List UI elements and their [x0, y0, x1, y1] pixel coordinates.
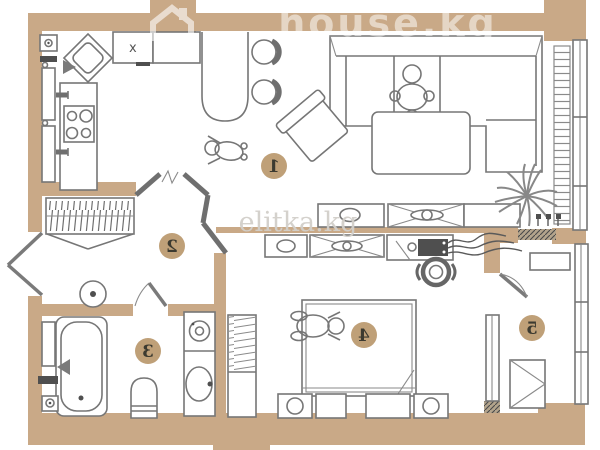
balcony-door-icon: [500, 274, 527, 297]
media-device-icon: [387, 235, 453, 260]
balcony-window-icon: [575, 244, 588, 404]
ottoman-icon: [278, 394, 312, 418]
living-room-fixtures: [205, 36, 561, 227]
wall-hatched-band: [518, 229, 556, 240]
room-label-4: 4: [351, 322, 377, 348]
bar-counter-icon: [202, 32, 248, 121]
room-label-3: 3: [135, 338, 161, 364]
sideboard-icon: [265, 235, 307, 257]
stool-icon: [80, 281, 106, 307]
sideboard-icon: [464, 204, 520, 227]
tv-console-icon: [310, 235, 384, 257]
room-label-5: 5: [519, 315, 545, 341]
wardrobe-hangers-icon: [46, 198, 134, 249]
floor-plan-image: x: [0, 0, 600, 450]
bathroom-door-icon: [135, 283, 166, 306]
corner-sink-icon: [64, 34, 112, 82]
hallway-fixtures: [46, 198, 134, 307]
kitchen-fixtures: x: [40, 32, 279, 190]
room-number: 5: [526, 319, 538, 339]
nightstand-icon: [414, 394, 448, 418]
wall-break-symbol: [162, 171, 178, 183]
bathroom-fixtures: [38, 312, 215, 418]
room-number: 2: [166, 237, 178, 257]
radiator-icon: [554, 46, 570, 224]
watermark-house-kg: house.kg: [278, 1, 498, 45]
nightstand-icon: [316, 394, 346, 418]
bar-stool-icon: [252, 40, 279, 64]
floor-plan: x: [0, 0, 600, 450]
room-label-2: 2: [159, 233, 185, 259]
wall-porch-block: [213, 418, 270, 450]
fan-icon: [417, 259, 455, 285]
entrance-double-door-icon: [8, 233, 42, 295]
double-bed-icon: [302, 300, 416, 396]
person-standing-icon: [205, 136, 247, 164]
wardrobe-icon: [510, 360, 545, 408]
shelving-unit-icon: [228, 315, 256, 417]
toilet-icon: [131, 378, 157, 418]
shelf-icon: [530, 253, 570, 270]
bench-icon: [366, 394, 410, 418]
riser-radiator-icon: [42, 68, 55, 120]
bedroom-fixtures: [228, 233, 522, 418]
wall-balcony-partition: [484, 243, 500, 273]
bathtub-icon: [56, 317, 107, 416]
room-number: 3: [142, 342, 154, 362]
hob-4-burner-icon: [64, 106, 94, 142]
bar-stool-icon: [252, 80, 279, 104]
room-number: 4: [358, 326, 370, 346]
cabinet-mark: x: [129, 41, 137, 56]
glazed-partition-icon: [486, 315, 499, 401]
coffee-table-icon: [372, 112, 470, 174]
riser-radiator-icon: [42, 126, 55, 182]
living-window-icon: [573, 40, 587, 230]
wall-bathroom-right: [214, 253, 226, 415]
watermark-elitka-kg: elitka.kg: [239, 207, 358, 238]
cabinet-x-icon: x: [113, 32, 153, 63]
tv-console-icon: [388, 204, 464, 227]
room-label-1: 1: [261, 153, 287, 179]
room-number: 1: [268, 157, 280, 177]
